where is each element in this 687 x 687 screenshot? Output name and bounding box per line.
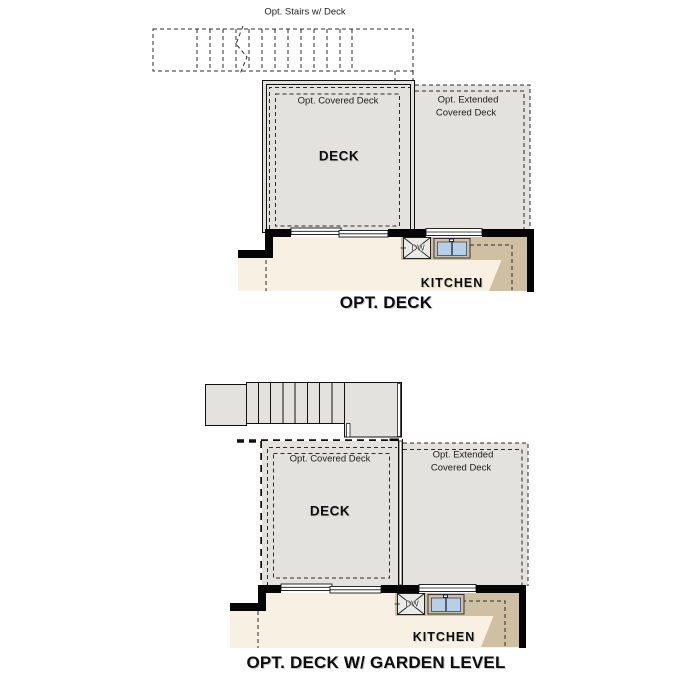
deck-label: DECK: [310, 504, 350, 519]
dishwasher-label: DW: [405, 600, 418, 609]
stairs-note-label: Opt. Stairs w/ Deck: [264, 7, 345, 18]
sink: [428, 595, 464, 615]
covered-deck-label: Opt. Covered Deck: [290, 454, 371, 465]
kitchen-label: KITCHEN: [413, 630, 476, 644]
deck-label: DECK: [319, 149, 359, 164]
extended-deck-label-2: Covered Deck: [436, 108, 496, 119]
dishwasher-label: DW: [411, 244, 424, 253]
kitchen-label: KITCHEN: [421, 276, 484, 290]
extended-deck-label-1: Opt. Extended: [438, 95, 499, 106]
plan-opt-deck-garden-level: [206, 383, 529, 649]
extended-deck-label-2: Covered Deck: [431, 463, 491, 474]
plan-title-garden-level: OPT. DECK W/ GARDEN LEVEL: [246, 653, 505, 673]
sink: [434, 239, 470, 259]
covered-deck-label: Opt. Covered Deck: [298, 96, 379, 107]
floorplan-sheet: Opt. Stairs w/ Deck Opt. Covered Deck Op…: [0, 0, 687, 687]
plan-title-opt-deck: OPT. DECK: [340, 293, 432, 313]
optional-stairs-outline: [153, 26, 413, 84]
extended-deck-label-1: Opt. Extended: [433, 450, 494, 461]
stairs: [206, 383, 402, 438]
